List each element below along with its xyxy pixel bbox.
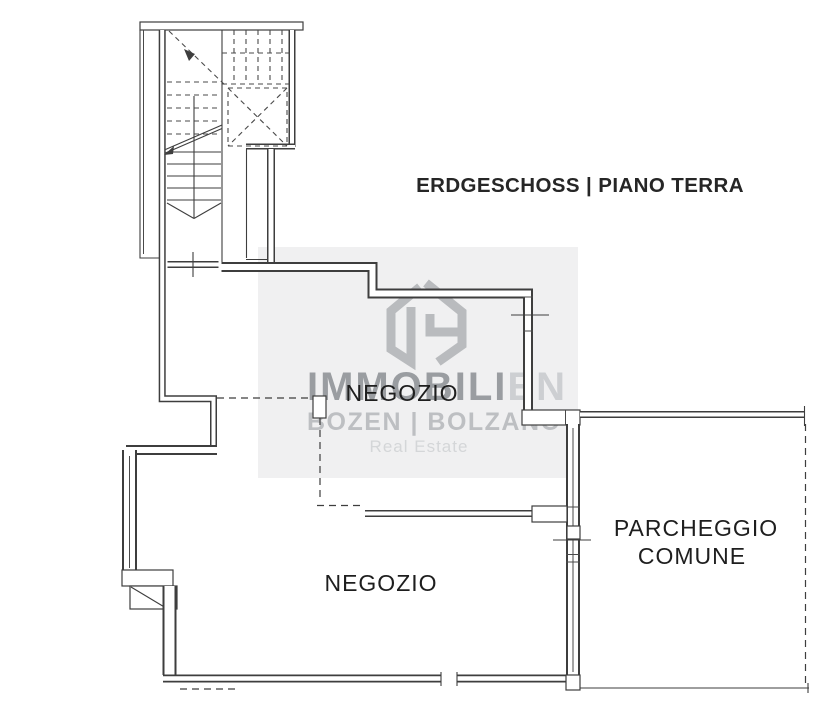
room-label-negozio-lower: NEGOZIO [324, 570, 437, 596]
watermark-brand-light: EN [507, 365, 567, 409]
entrance-step [122, 570, 173, 586]
left-wall-outer-face [140, 30, 159, 258]
left-wall [162, 30, 213, 450]
partition-pilaster [532, 506, 567, 522]
top-wall [140, 22, 303, 30]
door-jamb-block [313, 396, 326, 418]
stair-up-line [169, 31, 227, 87]
watermark-tagline: Real Estate [370, 437, 469, 456]
elevator-shaft [228, 88, 287, 146]
room-label-negozio-upper: NEGOZIO [345, 380, 458, 406]
floor-title: ERDGESCHOSS | PIANO TERRA [416, 174, 744, 197]
partition-pilaster [567, 526, 580, 539]
wall-pilaster [522, 410, 580, 425]
floor-plan-drawing: IMMOBILIEN BOZEN | BOLZANO Real Estate [0, 0, 840, 728]
wall-corner-block [566, 675, 580, 690]
room-label-parcheggio: PARCHEGGIO [614, 515, 778, 541]
floor-plan-page: IMMOBILIEN BOZEN | BOLZANO Real Estate [0, 0, 840, 728]
room-label-comune: COMUNE [638, 543, 746, 569]
